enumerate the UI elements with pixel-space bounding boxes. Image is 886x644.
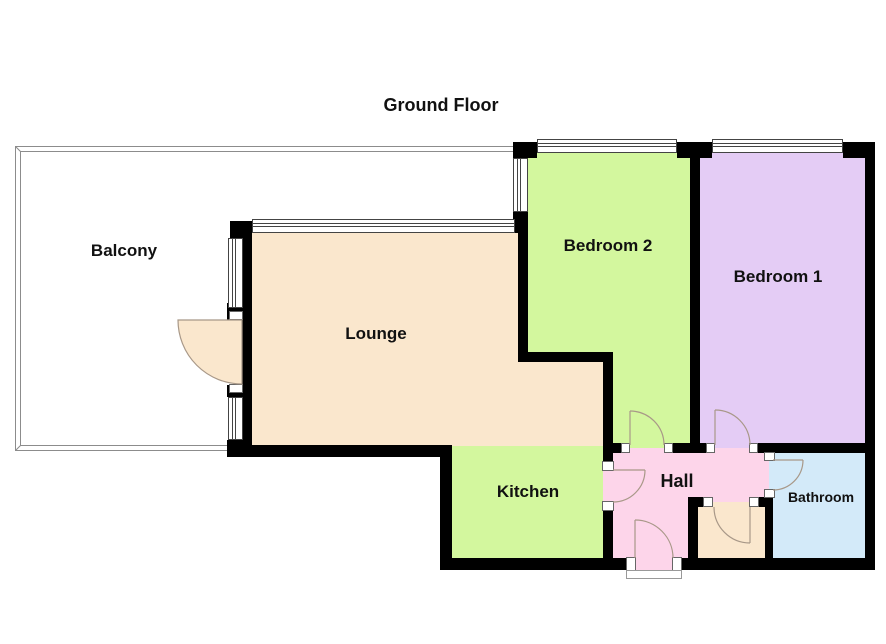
wall-bottom-left	[440, 558, 627, 570]
wall-bedroom2-step	[518, 352, 613, 362]
label-hall: Hall	[660, 471, 693, 491]
label-lounge: Lounge	[345, 324, 406, 343]
room-cupboard	[693, 502, 768, 563]
page-title: Ground Floor	[384, 95, 499, 115]
jamb-bedroom1-left	[707, 444, 715, 453]
jamb-kitchen-top	[603, 462, 614, 471]
label-balcony: Balcony	[91, 241, 158, 260]
label-bedroom1: Bedroom 1	[734, 267, 823, 286]
window-lounge-balcony-lower	[229, 398, 243, 440]
wall-right	[865, 142, 875, 568]
jamb-bathroom-top	[765, 453, 775, 461]
label-bathroom: Bathroom	[788, 489, 854, 505]
jamb-front-left	[627, 558, 636, 571]
jamb-bedroom2-right	[665, 444, 673, 453]
room-bedroom1	[695, 148, 870, 448]
jamb-kitchen-bottom	[603, 502, 614, 511]
wall-lounge-left	[242, 233, 252, 445]
window-lounge-balcony-upper	[229, 239, 243, 308]
wall-kitchen-left	[440, 445, 452, 570]
label-bedroom2: Bedroom 2	[564, 236, 653, 255]
label-kitchen: Kitchen	[497, 482, 559, 501]
jamb-cupboard-left	[704, 498, 713, 507]
jamb-bathroom-bottom	[765, 490, 775, 498]
wall-bedroom-divider	[690, 142, 700, 453]
window-bedroom1-top	[713, 140, 843, 153]
window-bedroom2-top	[538, 140, 677, 153]
jamb-cupboard-right	[750, 498, 759, 507]
jamb-bedroom2-left	[622, 444, 630, 453]
room-kitchen	[446, 446, 608, 565]
wall-lounge-bottom	[230, 445, 452, 457]
jamb-balcony-top	[230, 312, 243, 320]
front-door-threshold	[627, 571, 682, 579]
floorplan-ground-floor: Ground Floor Balcony Lounge Bedroom 2 Be…	[0, 0, 886, 644]
wall-bottom-right	[681, 558, 875, 570]
wall-cupboard-top-b	[758, 497, 773, 507]
jamb-bedroom1-right	[750, 444, 758, 453]
window-lounge-top	[253, 220, 515, 233]
wall-cupboard-top-a	[688, 497, 704, 507]
jamb-balcony-bottom	[230, 385, 243, 393]
room-bathroom	[769, 448, 870, 563]
window-bedroom2-balcony	[514, 159, 528, 212]
wall-bedroom2-left-lower	[513, 212, 528, 233]
room-hall-lower	[603, 448, 693, 570]
jamb-front-right	[673, 558, 682, 571]
